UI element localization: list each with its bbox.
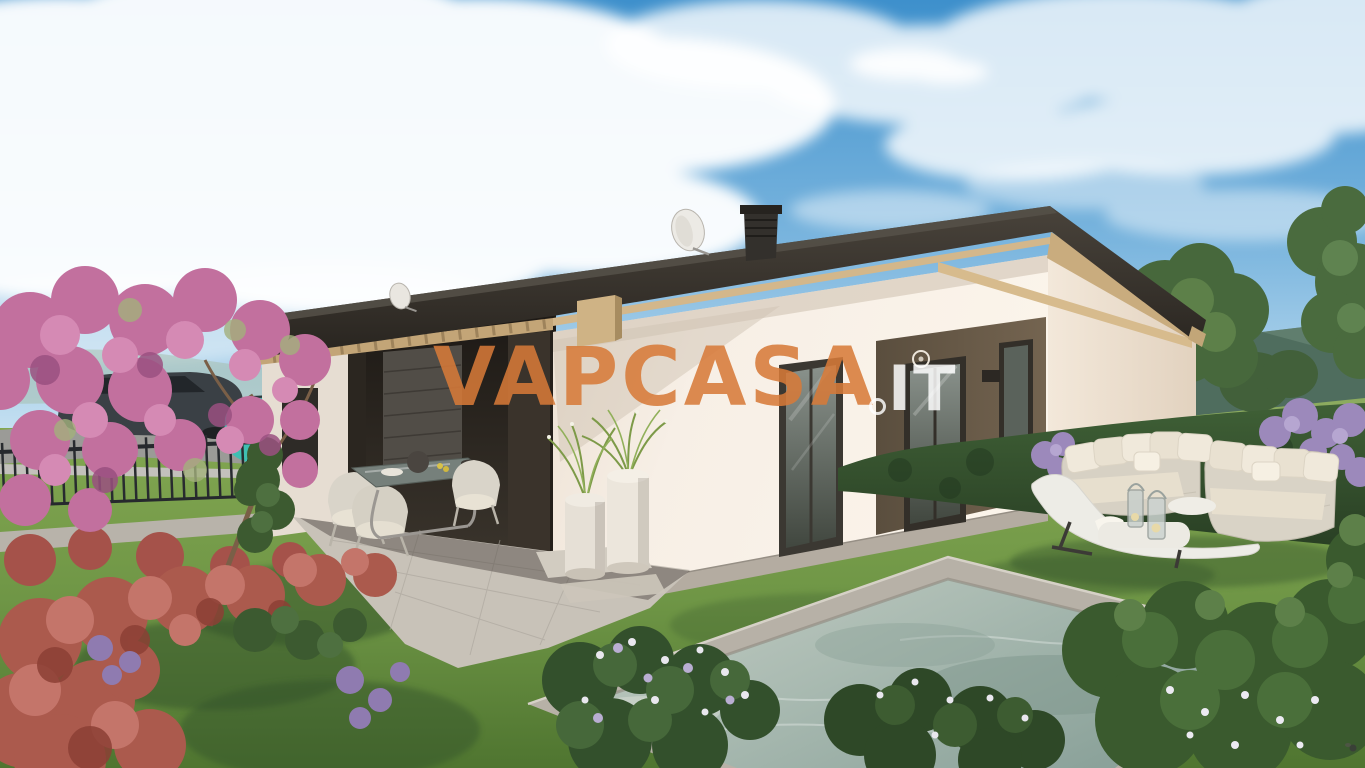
wood-bracket [577,295,615,347]
terrace-pillar [508,331,550,584]
planter [607,469,649,574]
wall-lamp [982,370,1000,382]
porch-post [348,350,366,476]
villa-render-scene [0,0,1365,768]
glazed-door-left [779,357,843,557]
side-table [1168,497,1216,515]
render-image: VAPCASA IT [0,0,1365,768]
table-vase [407,451,429,473]
planter [565,493,605,580]
chimney [740,205,782,261]
